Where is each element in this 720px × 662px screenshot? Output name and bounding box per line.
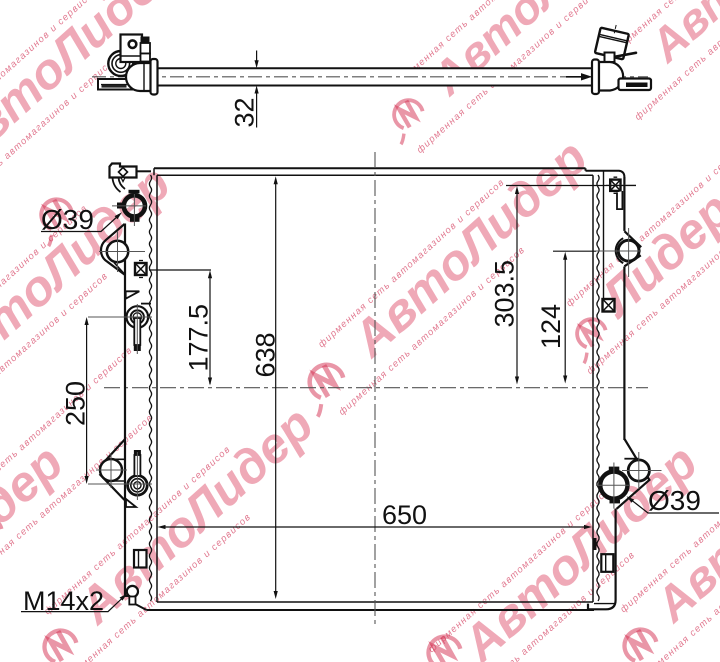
svg-text:32: 32: [230, 97, 260, 127]
svg-text:650: 650: [382, 500, 427, 530]
svg-text:303.5: 303.5: [490, 260, 520, 328]
svg-text:638: 638: [251, 332, 281, 377]
svg-text:177.5: 177.5: [184, 304, 214, 372]
svg-text:Ø39: Ø39: [648, 485, 701, 516]
svg-text:Ø39: Ø39: [41, 204, 94, 235]
svg-text:124: 124: [536, 304, 566, 349]
svg-text:250: 250: [61, 381, 91, 426]
